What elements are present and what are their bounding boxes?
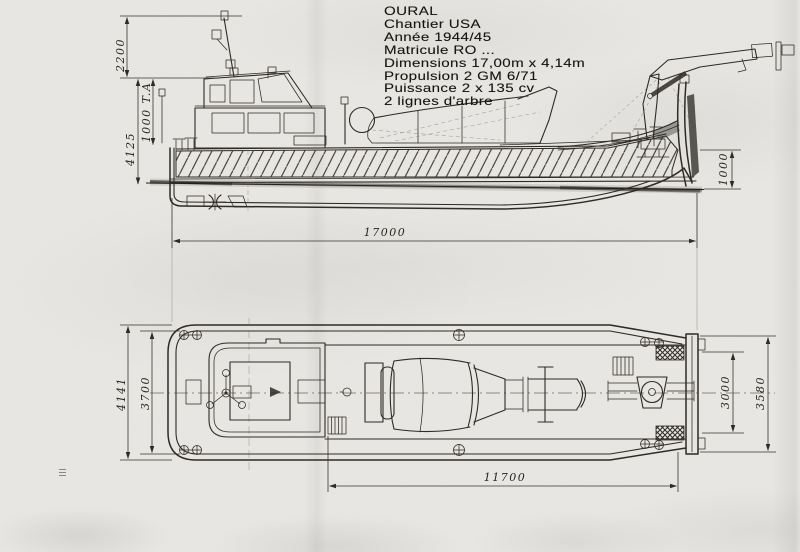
stern-flagstaff [159,89,165,143]
bulwark-hatch-band [176,134,678,177]
spec-block: OURAL Chantier USA Année 1944/45 Matricu… [384,5,585,108]
spec-line-shipyard: Chantier USA [384,18,585,31]
plan-view [150,318,775,472]
cabin-plan [186,339,325,437]
deck-grating-aft [328,417,346,434]
dim-beam-overall: 4141 [115,377,128,412]
dim-hull-height: 4125 [124,132,137,167]
spec-line-dimensions: Dimensions 17,00m x 4,14m [384,57,585,70]
dim-air-draft: 1000 T.A [140,82,153,143]
scanned-drawing-sheet: 2200 1000 T.A 4125 1000 17000 4141 3700 … [0,0,800,552]
deck-grating-fwd [613,357,633,375]
hatched-pad-bottom [656,426,684,440]
spec-line-year: Année 1944/45 [384,31,585,44]
dim-bow-width-outer: 3580 [754,376,767,410]
spec-line-name: OURAL [384,5,585,18]
deckhouse [195,106,326,148]
hatched-pad-top [656,346,684,360]
dim-bow-width-inner: 3000 [719,375,732,409]
stamp-mark [59,469,66,476]
mooring-bitts [173,138,197,150]
dim-length-overall: 17000 [364,226,407,239]
bow-winch [608,377,694,408]
spec-line-registry: Matricule RO ... [384,44,585,57]
steering-wheel [207,370,246,409]
engine-cargo-plan [340,358,586,432]
dim-beam-deck: 3700 [139,376,152,410]
dim-bow-freeboard: 1000 [717,152,730,186]
wheelhouse [204,71,312,108]
waterline [146,182,704,192]
spec-line-shafts: 2 lignes d'arbre [384,95,585,108]
dim-well-length: 11700 [484,471,527,484]
mast [212,11,276,78]
dim-mast-height: 2200 [114,38,127,73]
hull-plan [168,325,705,460]
